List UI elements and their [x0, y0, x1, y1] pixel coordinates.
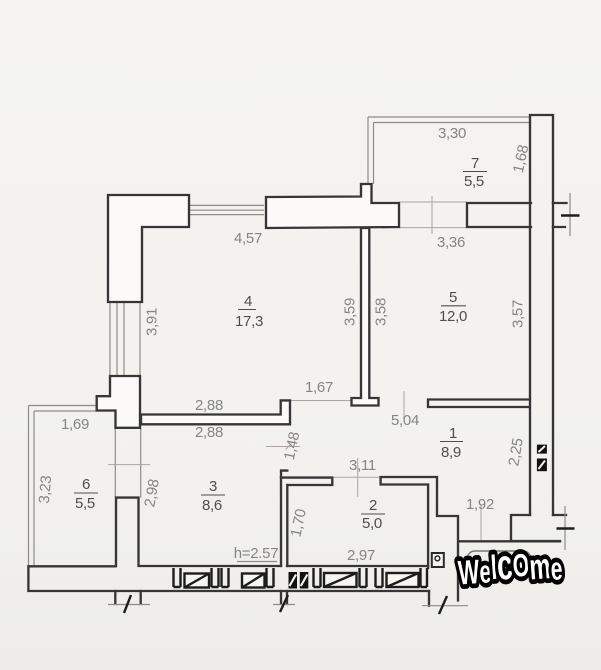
- svg-text:4,57: 4,57: [234, 230, 262, 247]
- svg-text:4: 4: [244, 293, 252, 310]
- svg-text:5,5: 5,5: [464, 173, 484, 190]
- svg-text:2,88: 2,88: [195, 424, 223, 441]
- svg-text:12,0: 12,0: [439, 308, 467, 325]
- svg-text:1,92: 1,92: [466, 496, 494, 513]
- svg-text:3,57: 3,57: [510, 300, 527, 328]
- svg-text:3: 3: [209, 478, 217, 495]
- svg-text:1,69: 1,69: [61, 416, 89, 433]
- svg-text:8,6: 8,6: [202, 497, 222, 514]
- svg-text:5,0: 5,0: [362, 515, 382, 532]
- svg-text:3,11: 3,11: [349, 457, 376, 474]
- svg-text:h=2.57: h=2.57: [234, 545, 279, 562]
- svg-text:3,23: 3,23: [36, 475, 55, 504]
- svg-text:3,36: 3,36: [437, 234, 465, 251]
- svg-text:2,88: 2,88: [195, 397, 223, 414]
- svg-text:17,3: 17,3: [235, 313, 263, 330]
- svg-text:7: 7: [471, 155, 479, 172]
- svg-text:6: 6: [82, 476, 90, 493]
- svg-text:1,67: 1,67: [305, 379, 333, 396]
- svg-text:1: 1: [449, 425, 457, 442]
- svg-text:3,91: 3,91: [144, 308, 161, 336]
- svg-text:5: 5: [449, 289, 457, 306]
- svg-text:5,04: 5,04: [391, 412, 419, 429]
- svg-text:2,97: 2,97: [347, 547, 375, 564]
- svg-text:3,59: 3,59: [342, 298, 359, 326]
- svg-text:5,5: 5,5: [75, 495, 95, 512]
- svg-text:2: 2: [369, 497, 377, 514]
- svg-text:8,9: 8,9: [441, 444, 461, 461]
- svg-text:3,58: 3,58: [373, 298, 390, 326]
- svg-text:3,30: 3,30: [438, 125, 466, 142]
